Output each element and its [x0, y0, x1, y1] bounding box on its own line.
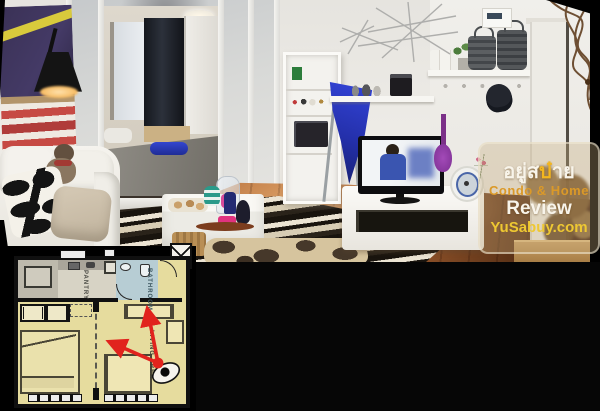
- tv-screen: [362, 140, 440, 186]
- wicker-lantern: [497, 30, 527, 70]
- purple-ukulele: [434, 144, 452, 172]
- wire-starburst-art: [338, 2, 460, 64]
- striped-toy: [204, 186, 220, 206]
- bedroom-wardrobe: [184, 16, 218, 134]
- tv-person-blue-jacket: [380, 154, 406, 180]
- plush-toy-scarf: [54, 160, 72, 166]
- tv-screen-blur: [408, 148, 434, 178]
- watermark-review: Review: [506, 199, 571, 218]
- green-box: [292, 67, 302, 80]
- lamp-glow: [40, 86, 78, 98]
- blue-rolled-towel: [150, 142, 188, 155]
- wall-hooks: [440, 82, 532, 90]
- wicker-lantern: [468, 36, 496, 70]
- shelf-items: [350, 84, 386, 96]
- floorplan-camera-view-arrows: [8, 242, 192, 411]
- bedroom-view: [104, 6, 218, 210]
- watermark-thai-title: อยู่สบ๋าย: [503, 162, 575, 182]
- watermark-url: YuSabuy.com: [490, 220, 587, 235]
- wall-shelf: [330, 96, 434, 102]
- niche-small-items: [290, 95, 330, 107]
- blue-bottle: [224, 192, 236, 214]
- snack-plate: [168, 198, 208, 212]
- wall-shelf: [428, 70, 530, 76]
- beige-pillow: [49, 185, 112, 243]
- bed-headboard: [144, 126, 190, 142]
- watermark-badge: อยู่สบ๋าย Condo & Home Review YuSabuy.co…: [478, 142, 600, 254]
- tv-stand-base: [380, 197, 420, 204]
- coffee-maker: [390, 74, 412, 96]
- niche-shelf: [286, 115, 332, 117]
- control-panel-display: [487, 13, 502, 19]
- dark-curtain: [144, 18, 184, 126]
- dark-cone-item: [236, 200, 250, 224]
- niche-shelf: [286, 89, 332, 91]
- floorplan-overlay: PANTRY BATHROOM LIVING AREA: [8, 242, 192, 411]
- screenshot-root: อยู่สบ๋าย Condo & Home Review YuSabuy.co…: [0, 0, 600, 411]
- bed-pillow: [104, 128, 132, 143]
- watermark-condo-home: Condo & Home: [489, 184, 589, 197]
- watermark-thai-accent: บ๋: [539, 161, 552, 183]
- media-shelf: [356, 210, 468, 232]
- wood-tray: [196, 222, 254, 231]
- microwave: [294, 121, 328, 147]
- fan-hub: [464, 181, 469, 186]
- niche-shelf: [286, 153, 332, 155]
